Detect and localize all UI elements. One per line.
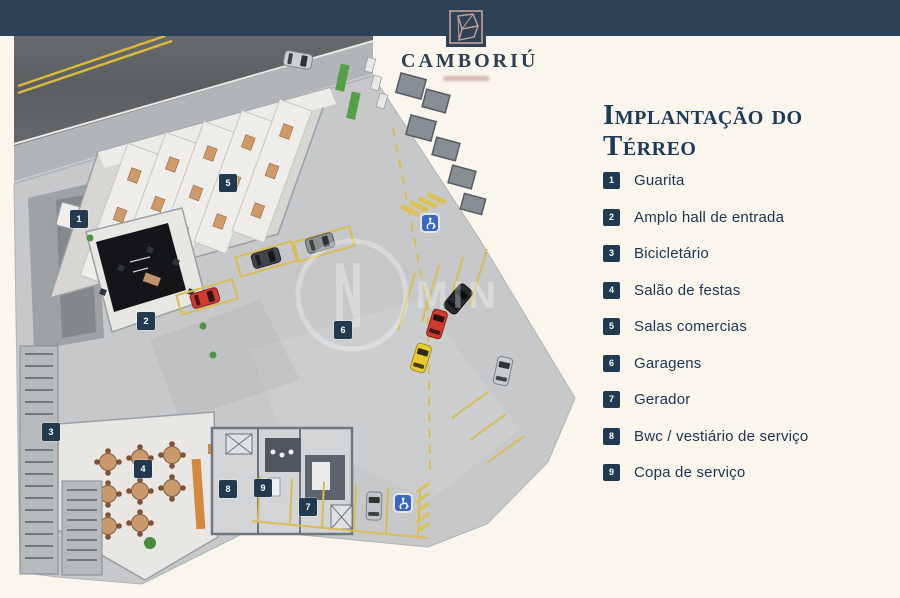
page-title-line1: Implantação do	[603, 100, 883, 131]
page-title: Implantação do Térreo	[603, 100, 883, 162]
accessible-parking-icon	[422, 215, 438, 231]
car-silver-bottom	[366, 492, 382, 521]
legend-item-2: 2 Amplo hall de entrada	[603, 209, 893, 226]
legend-item-number: 6	[603, 355, 620, 372]
plan-number-badge-9: 9	[254, 479, 272, 497]
legend-item-number: 5	[603, 318, 620, 335]
accessible-parking-icon	[395, 495, 411, 511]
brochure-slide: MIN CAMBORIÚ Implantação do Térreo 1 Gua…	[0, 0, 900, 598]
legend-item-label: Amplo hall de entrada	[634, 209, 784, 226]
legend-item-number: 8	[603, 428, 620, 445]
legend-item-number: 7	[603, 391, 620, 408]
brand-name: CAMBORIÚ	[401, 50, 531, 73]
plan-number-badge-5: 5	[219, 174, 237, 192]
plan-number-badge-6: 6	[334, 321, 352, 339]
brand-logo: CAMBORIÚ	[401, 0, 531, 81]
legend-item-label: Bicicletário	[634, 245, 709, 262]
plan-number-badge-8: 8	[219, 480, 237, 498]
legend-item-5: 5 Salas comercias	[603, 318, 893, 335]
legend-item-label: Bwc / vestiário de serviço	[634, 428, 808, 445]
watermark-text: MIN	[416, 275, 501, 317]
legend-item-4: 4 Salão de festas	[603, 282, 893, 299]
legend-item-number: 4	[603, 282, 620, 299]
legend-item-number: 2	[603, 209, 620, 226]
legend-item-1: 1 Guarita	[603, 172, 893, 189]
legend-item-label: Garagens	[634, 355, 701, 372]
legend-item-label: Gerador	[634, 391, 690, 408]
legend-item-label: Salão de festas	[634, 282, 740, 299]
legend-list: 1 Guarita 2 Amplo hall de entrada 3 Bici…	[603, 172, 893, 501]
plan-number-badge-1: 1	[70, 210, 88, 228]
page-title-line2: Térreo	[603, 131, 883, 162]
plan-number-badge-4: 4	[134, 460, 152, 478]
legend-item-number: 9	[603, 464, 620, 481]
legend-item-label: Salas comercias	[634, 318, 747, 335]
legend-item-6: 6 Garagens	[603, 355, 893, 372]
legend-item-number: 3	[603, 245, 620, 262]
legend-item-label: Copa de serviço	[634, 464, 745, 481]
legend-item-9: 9 Copa de serviço	[603, 464, 893, 481]
gem-logo-icon	[446, 7, 486, 47]
plan-number-badge-3: 3	[42, 423, 60, 441]
tree	[144, 537, 156, 549]
legend-item-number: 1	[603, 172, 620, 189]
legend-item-8: 8 Bwc / vestiário de serviço	[603, 428, 893, 445]
plan-number-badge-7: 7	[299, 498, 317, 516]
plan-number-badge-2: 2	[137, 312, 155, 330]
legend-item-7: 7 Gerador	[603, 391, 893, 408]
legend-item-3: 3 Bicicletário	[603, 245, 893, 262]
brand-tagline-mark	[443, 76, 489, 81]
legend-item-label: Guarita	[634, 172, 685, 189]
